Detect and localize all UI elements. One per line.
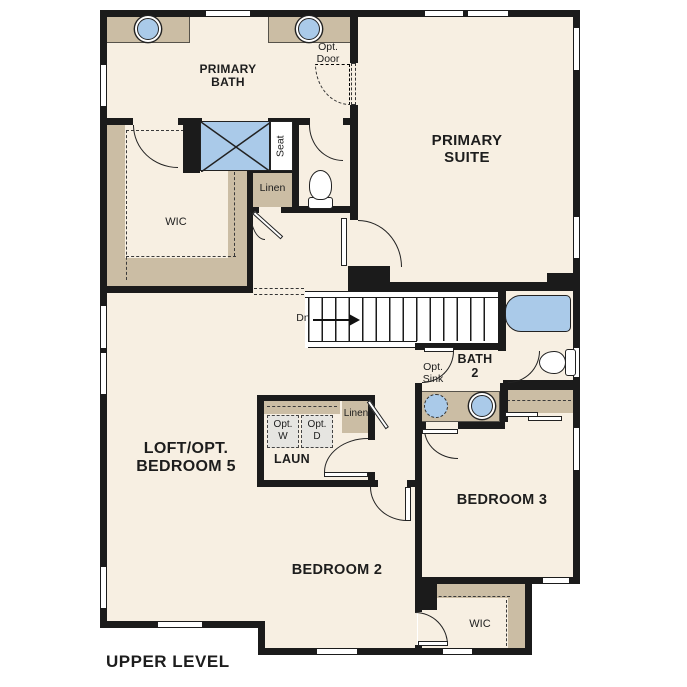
primary-suite-line1: PRIMARY xyxy=(407,133,527,150)
wall xyxy=(415,422,426,429)
wall xyxy=(257,395,343,401)
opt-sink-line2: Sink xyxy=(415,374,451,386)
window xyxy=(424,10,464,17)
stair-direction-line xyxy=(313,319,351,321)
optional-door-leaf xyxy=(351,63,356,105)
opt-door-line1: Opt. xyxy=(305,42,351,54)
plan-title: UPPER LEVEL xyxy=(106,652,326,671)
opt-dryer-label-2: D xyxy=(302,431,332,443)
room-label-laundry: LAUN xyxy=(264,452,320,466)
wall xyxy=(100,286,253,293)
primary-bath-line1: PRIMARY xyxy=(168,63,288,76)
wall xyxy=(407,480,422,487)
opt-washer-label-1: Opt. xyxy=(268,419,298,431)
opt-washer-label-2: W xyxy=(268,431,298,443)
toilet-bowl xyxy=(539,351,566,374)
floor-plan: Seat Opt. W Opt. D PRIMARY BATH Opt. Doo… xyxy=(0,0,687,687)
primary-bath-line2: BATH xyxy=(168,76,288,89)
wall xyxy=(348,266,390,292)
wall xyxy=(100,118,133,125)
door-leaf xyxy=(418,641,448,646)
floor-loft-column xyxy=(103,350,262,624)
window xyxy=(573,427,580,471)
wall xyxy=(458,422,505,429)
wall xyxy=(281,207,293,213)
label-wic-bedroom2: WIC xyxy=(455,618,505,630)
wic-primary-shelf-bottom xyxy=(107,258,247,286)
room-label-bath2: BATH 2 xyxy=(453,352,497,380)
wic-primary-dash-left xyxy=(126,130,127,280)
laundry-shelf xyxy=(264,401,340,414)
opt-sink-line1: Opt. xyxy=(415,362,451,374)
door-leaf xyxy=(422,429,458,434)
room-label-primary-bath: PRIMARY BATH xyxy=(168,63,288,90)
wall xyxy=(390,282,547,291)
optional-dryer: Opt. D xyxy=(301,415,333,448)
wic-primary-dash-right xyxy=(234,172,235,256)
bath-sink xyxy=(137,18,159,40)
opt-door-line2: Door xyxy=(305,54,351,66)
shower xyxy=(200,121,270,171)
window xyxy=(205,10,251,17)
wall xyxy=(415,645,422,655)
toilet-bowl xyxy=(309,170,332,200)
door-leaf xyxy=(341,218,347,266)
wall xyxy=(525,584,532,655)
window xyxy=(157,621,203,628)
wall xyxy=(350,10,358,63)
shower-x-icon xyxy=(201,122,271,172)
wall xyxy=(183,118,200,173)
door-leaf xyxy=(324,472,368,477)
loft-line1: LOFT/OPT. xyxy=(106,440,266,458)
wall xyxy=(415,383,422,422)
wall xyxy=(547,273,580,291)
label-linen-hall: Linen xyxy=(341,408,371,419)
wic-bedroom2-shelf-right xyxy=(508,598,525,648)
stair-direction-arrowhead xyxy=(349,314,360,326)
stair-bottom-rail xyxy=(308,341,417,348)
window xyxy=(442,648,473,655)
stair-top-rail xyxy=(305,291,501,298)
wic-primary-dash-bottom xyxy=(126,256,236,257)
room-label-bedroom2: BEDROOM 2 xyxy=(267,562,407,578)
label-wic-primary: WIC xyxy=(151,216,201,228)
loft-line2: BEDROOM 5 xyxy=(106,458,266,476)
wall xyxy=(292,125,299,213)
window xyxy=(542,577,570,584)
label-stairs-dn: Dn xyxy=(292,313,314,325)
bedroom3-closet-rod xyxy=(507,400,571,401)
bath2-line2: 2 xyxy=(453,366,497,380)
wall xyxy=(415,429,422,480)
wall xyxy=(257,480,378,487)
wall xyxy=(415,577,437,610)
opt-dryer-label-1: Opt. xyxy=(302,419,332,431)
wic-primary-shelf-right xyxy=(228,170,247,258)
bathtub xyxy=(505,295,571,332)
wall xyxy=(368,472,375,487)
loft-opening-dashed xyxy=(254,288,304,295)
shower-seat-label: Seat xyxy=(271,122,292,170)
window xyxy=(467,10,509,17)
laundry-shelf-dash xyxy=(267,406,337,407)
door-leaf xyxy=(405,487,411,521)
window xyxy=(573,27,580,71)
wall xyxy=(350,105,358,220)
window xyxy=(100,566,107,609)
shower-seat: Seat xyxy=(270,121,293,171)
wic-bedroom2-dash-right xyxy=(506,600,507,646)
window xyxy=(100,352,107,395)
optional-washer: Opt. W xyxy=(267,415,299,448)
room-label-bedroom3: BEDROOM 3 xyxy=(432,492,572,508)
wall xyxy=(368,428,375,440)
wall xyxy=(573,10,580,584)
door-leaf xyxy=(424,347,454,352)
optional-sink xyxy=(424,394,448,418)
toilet-tank xyxy=(565,349,576,376)
window xyxy=(100,305,107,349)
bedroom3-closet-shelf xyxy=(505,390,573,413)
window xyxy=(100,64,107,107)
label-linen-primary: Linen xyxy=(253,183,292,195)
bath-sink xyxy=(298,18,320,40)
room-label-loft: LOFT/OPT. BEDROOM 5 xyxy=(106,440,266,476)
primary-suite-line2: SUITE xyxy=(407,150,527,167)
annotation-opt-door: Opt. Door xyxy=(305,42,351,66)
window xyxy=(573,216,580,259)
closet-bypass-door xyxy=(528,416,562,421)
wall xyxy=(498,291,506,351)
annotation-opt-sink: Opt. Sink xyxy=(415,362,451,386)
bath-sink xyxy=(471,395,493,417)
bath2-line1: BATH xyxy=(453,352,497,366)
room-label-primary-suite: PRIMARY SUITE xyxy=(407,133,527,167)
